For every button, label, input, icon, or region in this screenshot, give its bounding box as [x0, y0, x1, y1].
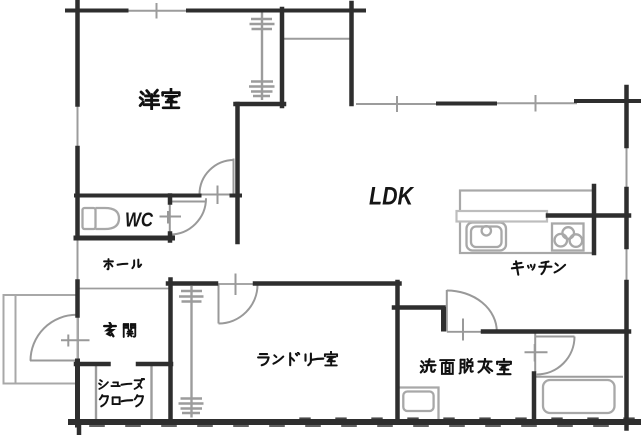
- svg-text:LDK: LDK: [369, 183, 415, 211]
- svg-text:WC: WC: [125, 210, 153, 232]
